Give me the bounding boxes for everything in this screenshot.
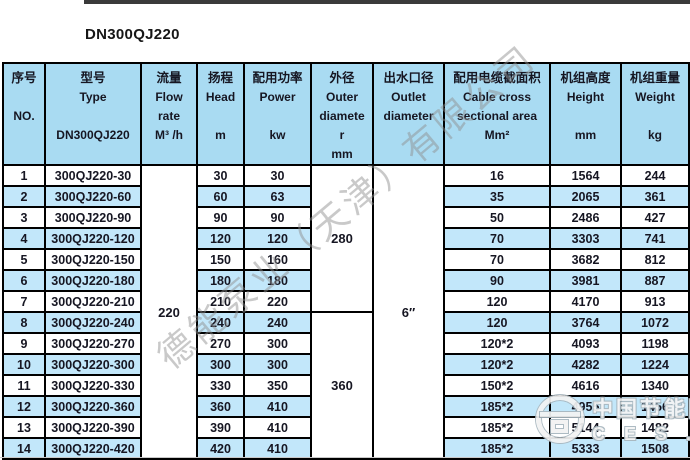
cell-head: 300 bbox=[197, 354, 244, 375]
cell-no: 14 bbox=[3, 438, 45, 459]
cell-head: 330 bbox=[197, 375, 244, 396]
header-label: 配用功率 bbox=[245, 69, 310, 88]
cell-power: 240 bbox=[244, 312, 311, 333]
cell-outer-diameter-merged-top: 280 bbox=[311, 165, 373, 312]
cell-type: 300QJ220-300 bbox=[45, 354, 141, 375]
cell-height: 2486 bbox=[550, 207, 621, 228]
cell-power: 300 bbox=[244, 333, 311, 354]
header-label: 机组重量 bbox=[622, 69, 688, 88]
cell-height: 4282 bbox=[550, 354, 621, 375]
cell-weight: 1198 bbox=[621, 333, 689, 354]
cell-power: 90 bbox=[244, 207, 311, 228]
cell-cable: 185*2 bbox=[444, 396, 550, 417]
cell-weight: 1224 bbox=[621, 354, 689, 375]
cell-power: 63 bbox=[244, 186, 311, 207]
cell-no: 4 bbox=[3, 228, 45, 249]
cell-power: 410 bbox=[244, 438, 311, 459]
cell-weight: 887 bbox=[621, 270, 689, 291]
cell-head: 390 bbox=[197, 417, 244, 438]
cell-no: 10 bbox=[3, 354, 45, 375]
col-header-flow-rate: 流量 Flow rate M³ /h bbox=[141, 63, 197, 165]
cell-weight: 427 bbox=[621, 207, 689, 228]
cell-cable: 35 bbox=[444, 186, 550, 207]
col-header-power: 配用功率 Power kw bbox=[244, 63, 311, 165]
cell-type: 300QJ220-60 bbox=[45, 186, 141, 207]
header-label: 序号 bbox=[4, 69, 44, 88]
cell-head: 270 bbox=[197, 333, 244, 354]
cell-cable: 150*2 bbox=[444, 375, 550, 396]
cell-type: 300QJ220-30 bbox=[45, 165, 141, 186]
cell-weight: 812 bbox=[621, 249, 689, 270]
col-header-cable-cross-section: 配用电缆截面积 Cable cross sectional area Mm² bbox=[444, 63, 550, 165]
cell-type: 300QJ220-240 bbox=[45, 312, 141, 333]
table-row: 1 300QJ220-30 220 30 30 280 6″ 16 1564 2… bbox=[3, 165, 689, 186]
cell-power: 220 bbox=[244, 291, 311, 312]
cell-cable: 185*2 bbox=[444, 438, 550, 459]
cell-head: 360 bbox=[197, 396, 244, 417]
table-row: 8 300QJ220-240 240 240 360 120 3764 1072 bbox=[3, 312, 689, 333]
cell-height: 2065 bbox=[550, 186, 621, 207]
col-header-unit-height: 机组高度 Height mm bbox=[550, 63, 621, 165]
cell-height: 1564 bbox=[550, 165, 621, 186]
page-title: DN300QJ220 bbox=[85, 26, 180, 43]
cell-head: 150 bbox=[197, 249, 244, 270]
header-label: 流量 bbox=[142, 69, 196, 88]
cell-no: 12 bbox=[3, 396, 45, 417]
cell-power: 410 bbox=[244, 417, 311, 438]
cell-no: 2 bbox=[3, 186, 45, 207]
cell-type: 300QJ220-120 bbox=[45, 228, 141, 249]
col-header-unit-weight: 机组重量 Weight kg bbox=[621, 63, 689, 165]
cell-weight: 1508 bbox=[621, 438, 689, 459]
cell-cable: 120*2 bbox=[444, 333, 550, 354]
cell-power: 120 bbox=[244, 228, 311, 249]
cell-cable: 16 bbox=[444, 165, 550, 186]
cell-no: 7 bbox=[3, 291, 45, 312]
cell-type: 300QJ220-210 bbox=[45, 291, 141, 312]
cell-weight: 244 bbox=[621, 165, 689, 186]
cell-height: 3682 bbox=[550, 249, 621, 270]
cell-head: 120 bbox=[197, 228, 244, 249]
cell-height: 5144 bbox=[550, 417, 621, 438]
cell-no: 5 bbox=[3, 249, 45, 270]
cell-height: 4170 bbox=[550, 291, 621, 312]
cell-height: 3764 bbox=[550, 312, 621, 333]
col-header-outlet-diameter: 出水口径 Outlet diameter bbox=[373, 63, 444, 165]
spec-table: 序号 NO. 型号 Type DN300QJ220 流量 Flow rate bbox=[2, 62, 690, 460]
cell-weight: 361 bbox=[621, 186, 689, 207]
col-header-head: 扬程 Head m bbox=[197, 63, 244, 165]
header-row: 序号 NO. 型号 Type DN300QJ220 流量 Flow rate bbox=[3, 63, 689, 165]
cell-no: 3 bbox=[3, 207, 45, 228]
cell-outer-diameter-merged-bottom: 360 bbox=[311, 312, 373, 459]
cell-type: 300QJ220-360 bbox=[45, 396, 141, 417]
cell-power: 30 bbox=[244, 165, 311, 186]
cell-weight: 741 bbox=[621, 228, 689, 249]
header-label: 出水口径 bbox=[374, 69, 443, 88]
cell-head: 240 bbox=[197, 312, 244, 333]
cell-power: 410 bbox=[244, 396, 311, 417]
cell-outlet-diameter-merged: 6″ bbox=[373, 165, 444, 459]
cell-head: 60 bbox=[197, 186, 244, 207]
cell-head: 30 bbox=[197, 165, 244, 186]
cell-height: 3303 bbox=[550, 228, 621, 249]
cell-power: 160 bbox=[244, 249, 311, 270]
cell-cable: 50 bbox=[444, 207, 550, 228]
header-label: 型号 bbox=[46, 69, 140, 88]
cell-head: 180 bbox=[197, 270, 244, 291]
cell-no: 11 bbox=[3, 375, 45, 396]
cell-type: 300QJ220-180 bbox=[45, 270, 141, 291]
cell-weight: 1482 bbox=[621, 417, 689, 438]
cell-weight: 1072 bbox=[621, 312, 689, 333]
cell-no: 13 bbox=[3, 417, 45, 438]
cell-no: 8 bbox=[3, 312, 45, 333]
cell-height: 4093 bbox=[550, 333, 621, 354]
cell-no: 6 bbox=[3, 270, 45, 291]
cell-height: 4955 bbox=[550, 396, 621, 417]
col-header-type: 型号 Type DN300QJ220 bbox=[45, 63, 141, 165]
header-label: 外径 bbox=[312, 69, 372, 88]
cell-head: 90 bbox=[197, 207, 244, 228]
cell-weight: 1456 bbox=[621, 396, 689, 417]
cell-height: 3981 bbox=[550, 270, 621, 291]
cell-no: 9 bbox=[3, 333, 45, 354]
cell-head: 420 bbox=[197, 438, 244, 459]
cell-cable: 185*2 bbox=[444, 417, 550, 438]
cell-type: 300QJ220-390 bbox=[45, 417, 141, 438]
cell-height: 5333 bbox=[550, 438, 621, 459]
cell-cable: 70 bbox=[444, 228, 550, 249]
header-label: 机组高度 bbox=[551, 69, 620, 88]
cell-power: 180 bbox=[244, 270, 311, 291]
cell-type: 300QJ220-90 bbox=[45, 207, 141, 228]
bottom-hairline bbox=[0, 457, 690, 458]
cell-power: 300 bbox=[244, 354, 311, 375]
cell-power: 350 bbox=[244, 375, 311, 396]
cell-no: 1 bbox=[3, 165, 45, 186]
cell-type: 300QJ220-330 bbox=[45, 375, 141, 396]
cell-weight: 913 bbox=[621, 291, 689, 312]
cell-weight: 1340 bbox=[621, 375, 689, 396]
cell-head: 210 bbox=[197, 291, 244, 312]
cell-type: 300QJ220-270 bbox=[45, 333, 141, 354]
cell-cable: 90 bbox=[444, 270, 550, 291]
header-label: 扬程 bbox=[198, 69, 243, 88]
cell-cable: 120 bbox=[444, 291, 550, 312]
header-label: 配用电缆截面积 bbox=[445, 69, 549, 88]
cell-height: 4616 bbox=[550, 375, 621, 396]
cell-cable: 120*2 bbox=[444, 354, 550, 375]
cell-cable: 70 bbox=[444, 249, 550, 270]
cell-type: 300QJ220-150 bbox=[45, 249, 141, 270]
col-header-outer-diameter: 外径 Outer diamete r mm bbox=[311, 63, 373, 165]
cell-flow-rate-merged: 220 bbox=[141, 165, 197, 459]
cell-type: 300QJ220-420 bbox=[45, 438, 141, 459]
col-header-no: 序号 NO. bbox=[3, 63, 45, 165]
cell-cable: 120 bbox=[444, 312, 550, 333]
top-divider-bar bbox=[84, 0, 690, 4]
page: DN300QJ220 序号 NO. 型号 Type DN300QJ220 bbox=[0, 0, 690, 460]
